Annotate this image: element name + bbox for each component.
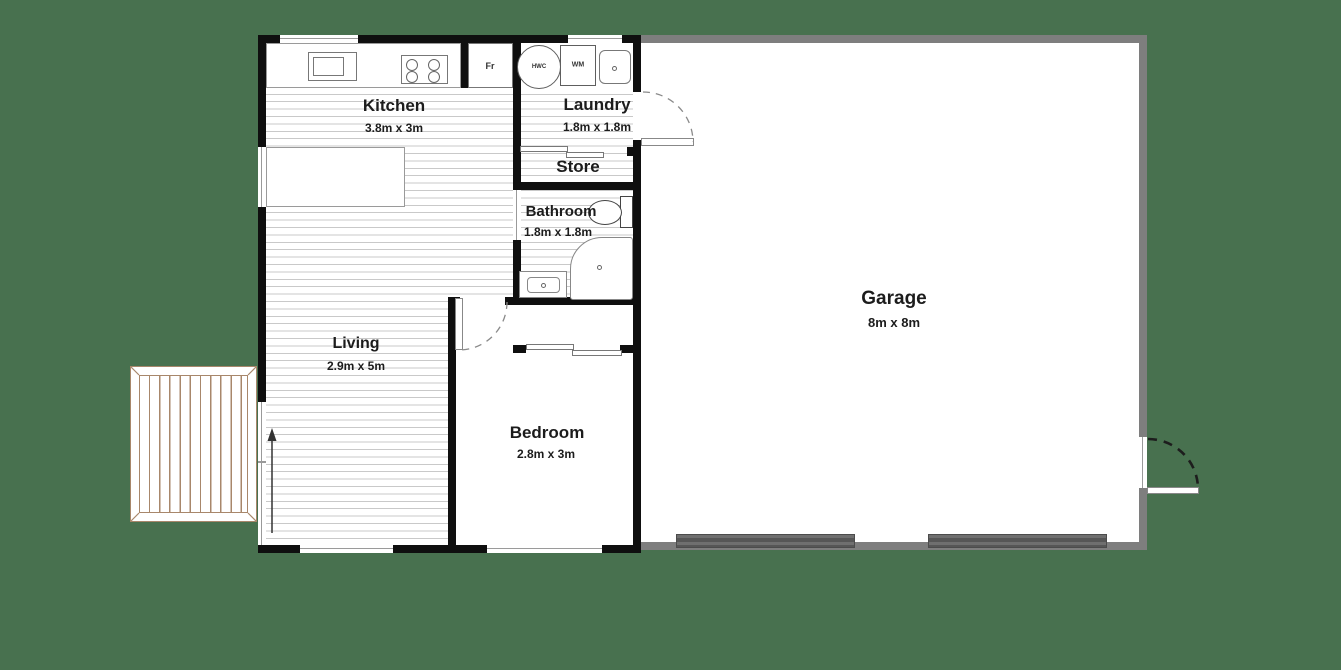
garage-door-icon bbox=[928, 534, 1107, 548]
garage-side-door-opening bbox=[1139, 437, 1147, 488]
window-icon bbox=[568, 35, 622, 43]
wall-kitchen-partition bbox=[461, 43, 468, 88]
slider-divider bbox=[258, 461, 266, 463]
wall-laundry-west bbox=[513, 43, 521, 305]
living-dims: 2.9m x 5m bbox=[327, 359, 385, 373]
window-icon bbox=[280, 35, 358, 43]
bedroom-dims: 2.8m x 3m bbox=[517, 447, 575, 461]
bathroom-dims: 1.8m x 1.8m bbox=[524, 225, 592, 239]
kitchen-label: Kitchen bbox=[363, 96, 425, 116]
window-icon bbox=[487, 545, 602, 553]
laundry-garage-door-opening bbox=[633, 92, 641, 140]
burner bbox=[406, 71, 418, 83]
fridge-label: Fr bbox=[486, 61, 495, 71]
burner bbox=[428, 59, 440, 71]
burner bbox=[428, 71, 440, 83]
wm-label: WM bbox=[572, 62, 584, 69]
door-swing-icon bbox=[1147, 487, 1199, 494]
store-label: Store bbox=[556, 157, 599, 177]
shower-drain bbox=[597, 265, 602, 270]
door-arc bbox=[1148, 439, 1198, 489]
bedroom-label: Bedroom bbox=[510, 423, 585, 443]
burner bbox=[406, 59, 418, 71]
window-icon bbox=[258, 147, 266, 207]
island-bench-icon bbox=[266, 147, 405, 207]
sliding-door-icon bbox=[258, 402, 266, 545]
garage-wall-top bbox=[641, 35, 1147, 43]
sliding-door-icon bbox=[526, 344, 574, 350]
sliding-door-icon bbox=[572, 350, 622, 356]
wall-laundry-store-stub bbox=[627, 147, 641, 156]
tub-drain bbox=[612, 66, 617, 71]
kitchen-sink-bowl bbox=[313, 57, 344, 76]
bathroom-door-opening bbox=[513, 190, 521, 240]
wall-store-bathroom bbox=[513, 182, 641, 190]
hwc-label: HWC bbox=[532, 64, 546, 70]
garage-door-icon bbox=[676, 534, 855, 548]
laundry-label: Laundry bbox=[563, 95, 630, 115]
bathroom-label: Bathroom bbox=[526, 203, 597, 220]
bedroom-door-opening bbox=[460, 297, 505, 305]
sliding-door-icon bbox=[520, 146, 568, 152]
wall-bedroom-north-stub-left bbox=[513, 345, 526, 353]
vanity-drain bbox=[541, 283, 546, 288]
living-label: Living bbox=[332, 335, 379, 353]
garage-dims: 8m x 8m bbox=[868, 315, 920, 330]
window-icon bbox=[300, 545, 393, 553]
laundry-dims: 1.8m x 1.8m bbox=[563, 120, 631, 134]
door-swing-icon bbox=[641, 138, 694, 146]
floor-plan: Fr HWC WM Kitchen 3.8m x 3m Laundry 1.8m… bbox=[0, 0, 1341, 670]
door-swing-icon bbox=[455, 298, 463, 350]
kitchen-dims: 3.8m x 3m bbox=[365, 121, 423, 135]
garage-label: Garage bbox=[861, 288, 926, 310]
wood-deck-icon bbox=[130, 366, 257, 522]
